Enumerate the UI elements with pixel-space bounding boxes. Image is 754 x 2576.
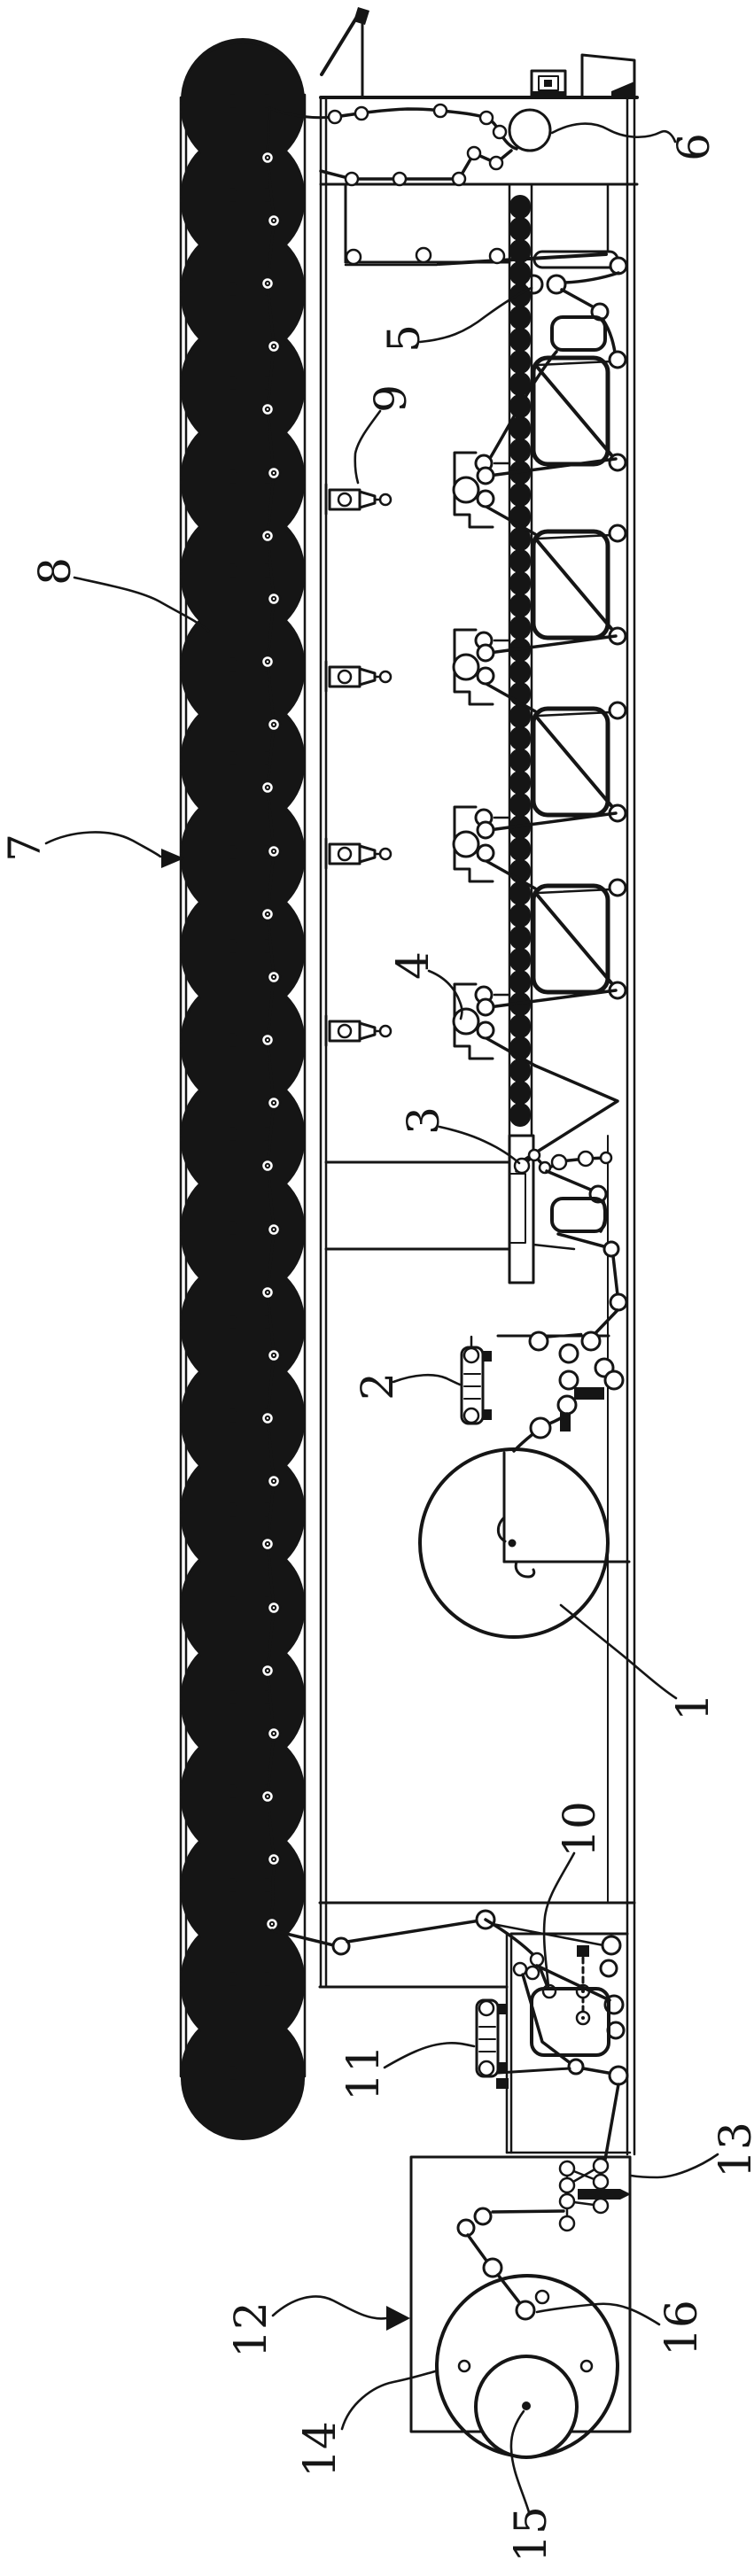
leader-line-11 [385, 2043, 474, 2068]
machine-diagram: 12345678910111213141516 [0, 0, 754, 2576]
lever-arm [322, 7, 369, 97]
unwind-roll-1 [420, 1449, 629, 1637]
part-label-10: 10 [554, 1801, 605, 1858]
part-label-12: 12 [225, 2301, 276, 2358]
print-units [454, 352, 626, 1161]
outfeed-chute [582, 55, 634, 97]
infeed-unit-2 [462, 1310, 623, 1451]
cylinder-cluster-3 [454, 807, 616, 888]
plate-unit-1 [533, 352, 626, 470]
part-label-9: 9 [365, 384, 416, 413]
guide-plate [552, 317, 605, 350]
part-label-3: 3 [398, 1106, 449, 1135]
spray-gun-4 [326, 1016, 391, 1045]
part-label-4: 4 [387, 951, 439, 980]
leader-line-16 [537, 2304, 659, 2324]
part-label-11: 11 [338, 2045, 389, 2101]
part-labels: 12345678910111213141516 [0, 124, 754, 2563]
plate-unit-2 [533, 525, 626, 644]
drying-rack [181, 95, 305, 2078]
cylinder-cluster-4 [454, 984, 616, 1066]
cooling-roller-6 [509, 110, 550, 151]
patent-figure-page: 12345678910111213141516 [0, 0, 754, 2576]
control-box [532, 71, 565, 97]
part-label-7: 7 [0, 834, 51, 862]
part-label-16: 16 [656, 2300, 707, 2356]
part-label-8: 8 [29, 557, 81, 586]
part-label-15: 15 [505, 2506, 556, 2563]
dancer-frame-11 [477, 2000, 507, 2076]
part-label-13: 13 [710, 2122, 754, 2178]
spray-gun-3 [326, 839, 391, 868]
touch-roller-16 [517, 2301, 534, 2319]
leader-arrowhead-12 [386, 2306, 410, 2331]
leader-line-9 [355, 411, 380, 483]
leader-line-12 [273, 2296, 386, 2318]
dancer-frame-2 [462, 1347, 492, 1424]
spray-gun-2 [326, 662, 391, 691]
cylinder-cluster-2 [454, 630, 616, 711]
plate-unit-4 [533, 880, 626, 998]
lower-unit-10-11 [477, 1934, 630, 2160]
leader-line-7 [46, 832, 160, 857]
leader-line-3 [439, 1127, 519, 1163]
leader-line-13 [631, 2154, 718, 2177]
leader-line-14 [342, 2371, 435, 2429]
part-label-14: 14 [294, 2421, 346, 2478]
top-section [321, 7, 637, 185]
spray-gun-1 [326, 485, 391, 514]
part-label-5: 5 [378, 324, 430, 353]
leader-line-10 [544, 1853, 574, 1987]
guide-assembly-3 [326, 1136, 626, 1310]
part-label-2: 2 [352, 1372, 403, 1401]
winder-box-12 [411, 2157, 631, 2457]
part-label-6: 6 [668, 133, 719, 161]
spray-guns [326, 485, 391, 1045]
leader-line-2 [393, 1375, 460, 1385]
leader-line-1 [561, 1605, 676, 1698]
plate-unit-3 [533, 702, 626, 821]
leader-line-6 [552, 124, 675, 142]
roller-stack-13 [560, 2159, 631, 2231]
part-label-1: 1 [667, 1693, 719, 1721]
